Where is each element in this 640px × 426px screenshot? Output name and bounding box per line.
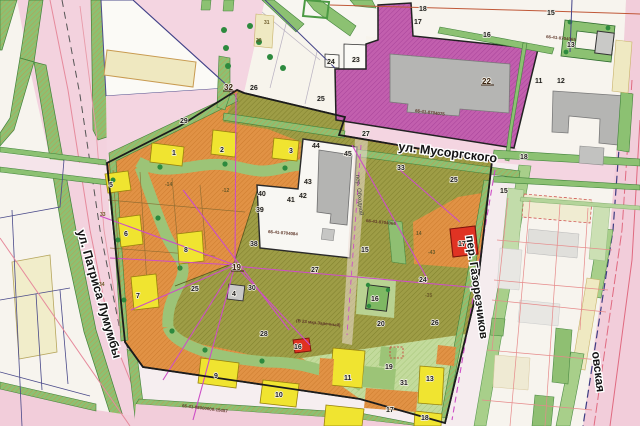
svg-text:26: 26 — [431, 320, 439, 327]
svg-text:25: 25 — [191, 286, 199, 293]
svg-text:8: 8 — [184, 247, 188, 254]
svg-text:18: 18 — [520, 154, 528, 161]
svg-text:1: 1 — [172, 150, 176, 157]
svg-text:24: 24 — [327, 59, 335, 66]
svg-text:13: 13 — [567, 42, 575, 49]
svg-text:16: 16 — [371, 296, 379, 303]
svg-text:40: 40 — [258, 191, 266, 198]
svg-text:28: 28 — [260, 331, 268, 338]
svg-text:16: 16 — [483, 32, 491, 39]
svg-text:12: 12 — [557, 78, 565, 85]
svg-text:5: 5 — [109, 182, 113, 189]
svg-text:17: 17 — [458, 241, 466, 248]
svg-text:23: 23 — [352, 57, 360, 64]
svg-text:9: 9 — [214, 373, 218, 380]
svg-text:44: 44 — [312, 143, 320, 150]
svg-text:-14: -14 — [165, 182, 172, 188]
svg-text:41: 41 — [287, 197, 295, 204]
svg-text:27: 27 — [362, 131, 370, 138]
svg-text:10: 10 — [275, 392, 283, 399]
svg-text:30: 30 — [248, 285, 256, 292]
svg-text:34: 34 — [99, 282, 105, 288]
svg-text:39: 39 — [256, 207, 264, 214]
svg-text:33: 33 — [100, 212, 106, 218]
svg-text:18: 18 — [421, 415, 429, 422]
svg-text:-43: -43 — [428, 250, 435, 256]
svg-text:13: 13 — [426, 376, 434, 383]
svg-text:2: 2 — [220, 147, 224, 154]
svg-text:20: 20 — [377, 321, 385, 328]
svg-text:18: 18 — [419, 6, 427, 13]
svg-text:45: 45 — [344, 151, 352, 158]
svg-text:4: 4 — [232, 291, 236, 298]
svg-text:19: 19 — [385, 364, 393, 371]
svg-text:11: 11 — [535, 78, 543, 85]
svg-text:16: 16 — [294, 344, 302, 351]
svg-text:27: 27 — [311, 267, 319, 274]
svg-text:25: 25 — [450, 177, 458, 184]
svg-text:24: 24 — [419, 277, 427, 284]
svg-text:25: 25 — [317, 96, 325, 103]
svg-text:38: 38 — [250, 241, 258, 248]
svg-text:6: 6 — [124, 231, 128, 238]
svg-text:31: 31 — [264, 20, 270, 26]
svg-text:42: 42 — [299, 193, 307, 200]
svg-text:14: 14 — [416, 231, 422, 237]
svg-text:15: 15 — [500, 188, 508, 195]
svg-text:43: 43 — [304, 179, 312, 186]
svg-text:17: 17 — [386, 407, 394, 414]
svg-text:33: 33 — [397, 165, 405, 172]
svg-text:29: 29 — [180, 118, 188, 125]
svg-text:31: 31 — [400, 380, 408, 387]
svg-text:-12: -12 — [222, 188, 229, 194]
svg-text:15: 15 — [547, 10, 555, 17]
svg-text:15: 15 — [361, 247, 369, 254]
svg-text:17: 17 — [414, 19, 422, 26]
svg-text:3: 3 — [289, 148, 293, 155]
svg-text:7: 7 — [136, 293, 140, 300]
svg-text:26: 26 — [250, 85, 258, 92]
svg-text:-35: -35 — [425, 293, 432, 299]
svg-text:30: 30 — [256, 38, 262, 44]
svg-text:11: 11 — [344, 375, 352, 382]
